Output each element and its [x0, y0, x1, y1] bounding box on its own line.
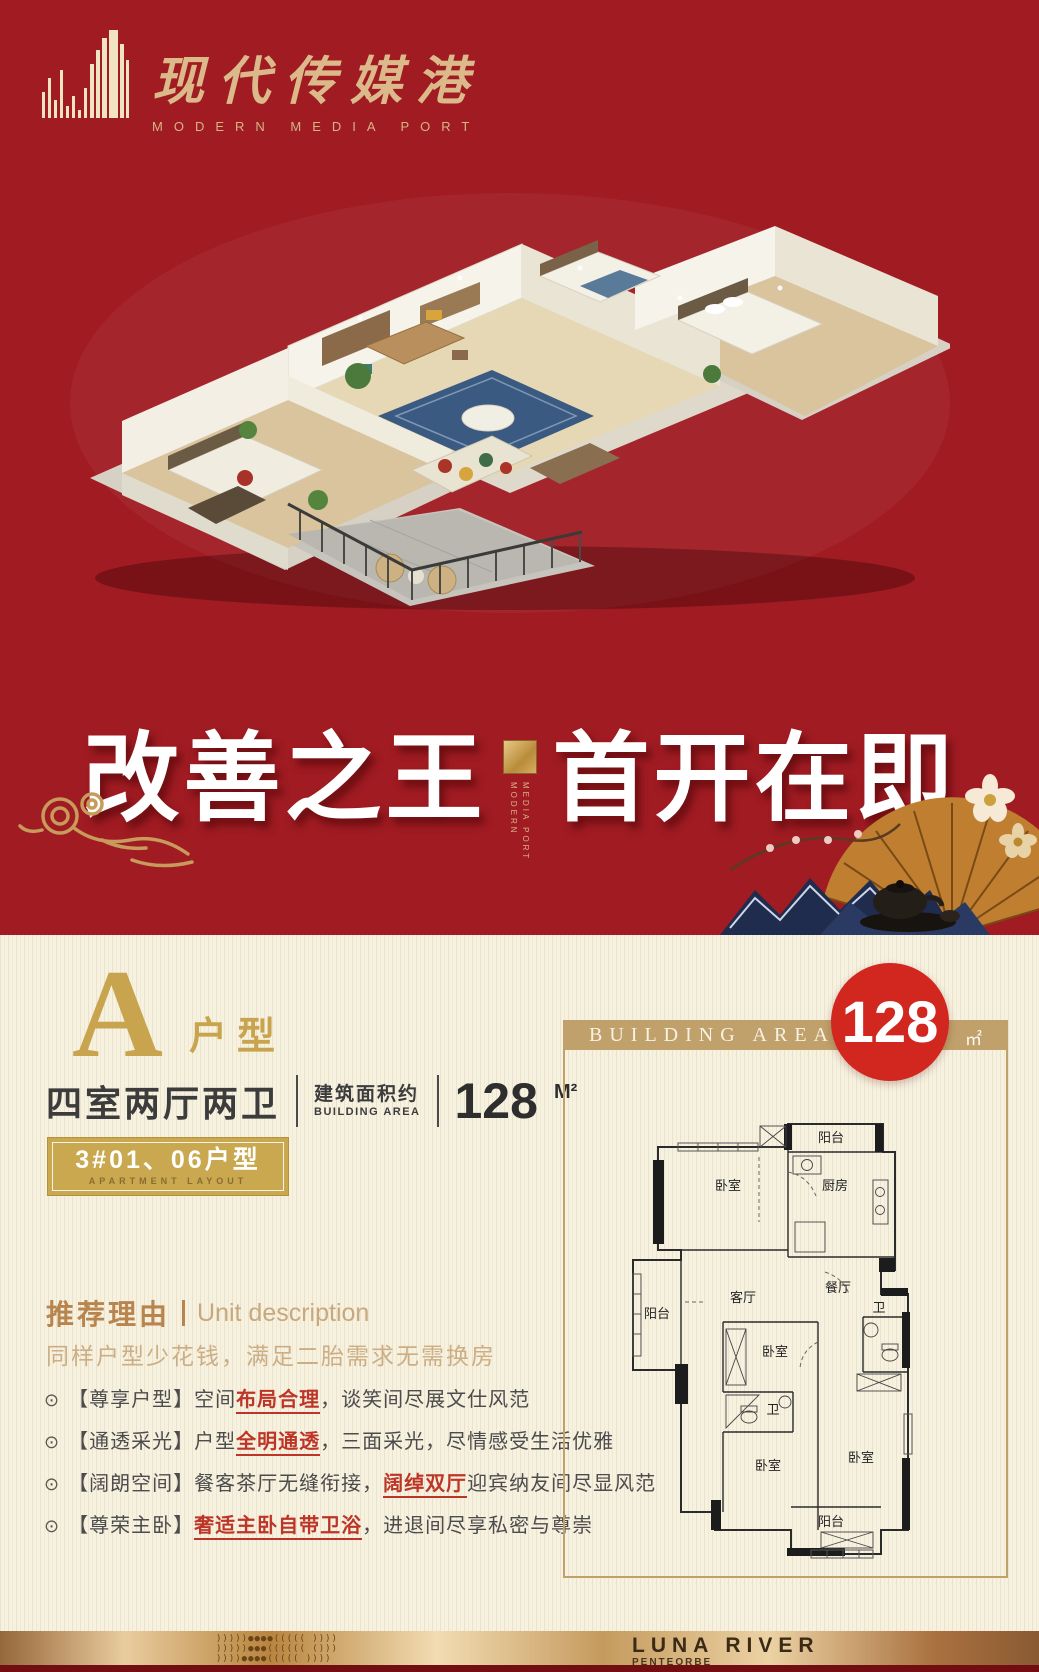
- bullet-text: 餐客茶厅无缝衔接，: [194, 1473, 383, 1495]
- room-label: 卧室: [762, 1344, 788, 1359]
- bullet-text: ，进退间尽享私密与尊崇: [362, 1515, 593, 1537]
- moon-phase-pattern: )))))●●●●((((( )))) )))))●●●(((((( ())) …: [216, 1634, 338, 1664]
- unit-type-letter: A: [72, 963, 163, 1066]
- area-label-cn: 建筑面积约: [314, 1084, 420, 1106]
- bullet-icon: ⊙: [44, 1390, 60, 1410]
- description-title: 推荐理由 Unit description: [46, 1293, 369, 1333]
- pattern-line: )))))●●●●((((( )))): [216, 1634, 338, 1644]
- floor-plan-drawing: 阳台 卧室 厨房 餐厅 阳台 客厅 卧室 卫 卫 卧室 卧室 阳台: [563, 1062, 1008, 1572]
- unit-type-label: 户型: [189, 1005, 285, 1066]
- fan-ornament: [700, 730, 1039, 935]
- divider-line2: MEDIA PORT: [521, 782, 530, 861]
- area-labels: 建筑面积约 BUILDING AREA: [314, 1084, 420, 1118]
- room-label: 餐厅: [825, 1280, 851, 1295]
- bullet-tag: 【通透采光】: [68, 1431, 194, 1453]
- brand-name-en: MODERN MEDIA PORT: [152, 119, 482, 134]
- footer-brand-name: LUNA RIVER: [632, 1635, 820, 1656]
- bullet-highlight: 奢适主卧自带卫浴: [194, 1515, 362, 1540]
- room-label: 卧室: [848, 1450, 874, 1465]
- divider: [296, 1075, 298, 1127]
- unit-type: A 户型: [72, 963, 285, 1066]
- bullet-text: ，谈笑间尽展文仕风范: [320, 1389, 530, 1411]
- apartment-number-badge: 3#01、06户型 APARTMENT LAYOUT: [48, 1138, 288, 1195]
- bullet-icon: ⊙: [44, 1432, 60, 1452]
- bullet-tag: 【尊荣主卧】: [68, 1515, 194, 1537]
- bullet-highlight: 布局合理: [236, 1389, 320, 1414]
- headline-divider-text: MODERN MEDIA PORT: [509, 782, 530, 861]
- gold-seal-icon: [503, 740, 537, 774]
- description-title-cn: 推荐理由: [46, 1293, 170, 1333]
- brand-name-cn: 现代传媒港: [152, 57, 482, 109]
- brand-logo: 现代传媒港 MODERN MEDIA PORT: [42, 30, 482, 134]
- bullet-tag: 【阔朗空间】: [68, 1473, 194, 1495]
- footer-brand: LUNA RIVER PENTEORBE: [632, 1635, 820, 1668]
- room-label: 阳台: [818, 1130, 844, 1145]
- floor-plan-header-label: BUILDING AREA: [563, 1024, 835, 1047]
- apartment-number-badge-inner: 3#01、06户型 APARTMENT LAYOUT: [52, 1142, 284, 1191]
- room-label: 卧室: [715, 1178, 741, 1193]
- area-value: 128: [455, 1076, 538, 1126]
- room-label: 客厅: [730, 1290, 756, 1305]
- room-label: 卫: [766, 1402, 779, 1417]
- hero-section: 现代传媒港 MODERN MEDIA PORT: [0, 0, 1039, 935]
- unit-rooms: 四室两厅两卫: [46, 1075, 280, 1127]
- building-bars-icon: [42, 30, 134, 134]
- room-label: 厨房: [822, 1178, 848, 1193]
- description-subtitle: 同样户型少花钱，满足二胎需求无需换房: [46, 1337, 496, 1371]
- pattern-line: ))))●●●●((((( )))): [216, 1654, 338, 1664]
- apartment-3d-render: [60, 178, 950, 618]
- pattern-line: )))))●●●(((((( ())): [216, 1644, 338, 1654]
- cloud-ornament: [12, 778, 202, 878]
- area-badge-value: 128: [842, 989, 939, 1056]
- divider: [437, 1075, 439, 1127]
- apartment-number-en: APARTMENT LAYOUT: [89, 1176, 248, 1186]
- footer-strip: [0, 1665, 1039, 1672]
- room-label: 卧室: [755, 1458, 781, 1473]
- bullet-tag: 【尊享户型】: [68, 1389, 194, 1411]
- headline-divider: MODERN MEDIA PORT: [503, 740, 537, 861]
- apartment-number: 3#01、06户型: [75, 1147, 260, 1175]
- poster: 现代传媒港 MODERN MEDIA PORT: [0, 0, 1039, 1672]
- room-label: 卫: [872, 1300, 885, 1315]
- details-section: A 户型 四室两厅两卫 建筑面积约 BUILDING AREA 128 M² 3…: [0, 935, 1039, 1672]
- unit-summary: 四室两厅两卫 建筑面积约 BUILDING AREA 128 M²: [46, 1075, 577, 1127]
- floor-plan-area-unit: ㎡: [965, 1025, 982, 1050]
- bullet-icon: ⊙: [44, 1516, 60, 1536]
- description-title-en: Unit description: [197, 1299, 369, 1328]
- bullet-highlight: 阔绰双厅: [383, 1473, 467, 1498]
- bullet-text: 空间: [194, 1389, 236, 1411]
- bullet-text: 户型: [194, 1431, 236, 1453]
- room-label: 阳台: [818, 1514, 844, 1529]
- floor-plan-panel: BUILDING AREA ㎡ 128: [563, 1020, 1008, 1578]
- bullet-highlight: 全明通透: [236, 1431, 320, 1456]
- divider-line1: MODERN: [509, 782, 518, 861]
- brand-text: 现代传媒港 MODERN MEDIA PORT: [152, 57, 482, 134]
- room-label: 阳台: [644, 1306, 670, 1321]
- footer-bar: )))))●●●●((((( )))) )))))●●●(((((( ())) …: [0, 1631, 1039, 1667]
- area-label-en: BUILDING AREA: [314, 1106, 420, 1119]
- divider: [182, 1300, 185, 1326]
- bullet-icon: ⊙: [44, 1474, 60, 1494]
